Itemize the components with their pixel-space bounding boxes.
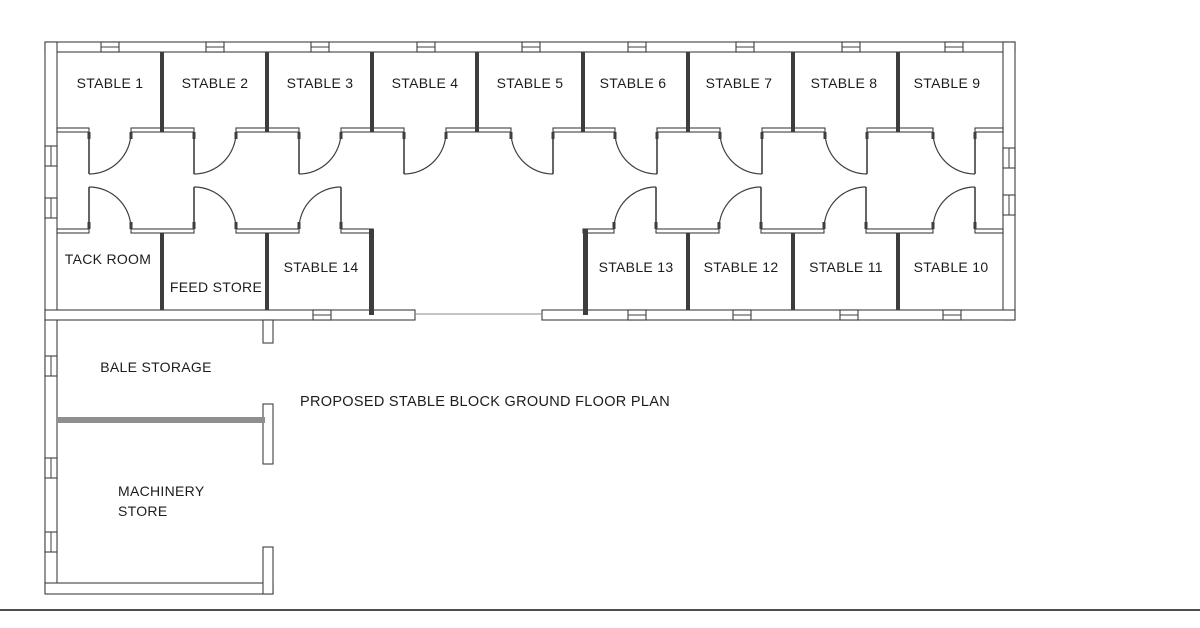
divider-stable-2-3	[265, 52, 269, 132]
door-swing-arc-stable-9	[933, 132, 975, 174]
door-swing-arc-stable-1	[89, 132, 131, 174]
room-label-stable-5: STABLE 5	[497, 75, 564, 91]
divider-stable-3-4	[370, 52, 374, 132]
door-swing-arc-stable-5	[511, 132, 553, 174]
door-swing-arc-stable-10	[933, 187, 975, 229]
bale-opening-jamb	[263, 320, 273, 343]
stable-13-end-wall	[583, 229, 588, 315]
right-exterior-wall	[1003, 42, 1015, 320]
machinery-opening-jamb	[263, 547, 273, 594]
door-swing-arc-stable-14	[299, 187, 341, 229]
divider-stable-12-11	[791, 233, 795, 310]
divider-stable-7-8	[791, 52, 795, 132]
corridor-south-wall-segment	[866, 229, 933, 233]
room-label-stable-4: STABLE 4	[392, 75, 459, 91]
room-label-bale-storage: BALE STORAGE	[100, 359, 212, 375]
room-label-stable-10: STABLE 10	[914, 259, 989, 275]
door-swing-arc-stable-12	[719, 187, 761, 229]
bale-machinery-partition-wall	[57, 417, 265, 423]
partition-end-pilaster	[263, 404, 273, 464]
divider-stable-13-12	[686, 233, 690, 310]
corridor-south-wall-segment	[656, 229, 719, 233]
room-label-stable-13: STABLE 13	[599, 259, 674, 275]
corridor-north-wall-segment	[57, 128, 89, 132]
room-label-stable-7: STABLE 7	[706, 75, 773, 91]
corridor-south-wall-segment	[236, 229, 299, 233]
corridor-north-wall-segment	[975, 128, 1003, 132]
room-label-machinery-store: MACHINERY STORE	[118, 481, 204, 521]
machinery-bottom-wall	[45, 583, 273, 594]
divider-stable-1-2	[160, 52, 164, 132]
door-swing-arc-stable-8	[825, 132, 867, 174]
room-label-stable-8: STABLE 8	[811, 75, 878, 91]
corridor-south-wall-segment	[341, 229, 373, 233]
door-swing-arc-stable-3	[299, 132, 341, 174]
floor-plan-drawing	[0, 0, 1200, 628]
room-label-stable-12: STABLE 12	[704, 259, 779, 275]
divider-feed-stable14	[265, 233, 269, 310]
room-label-stable-6: STABLE 6	[600, 75, 667, 91]
room-label-feed-store: FEED STORE	[170, 279, 262, 295]
corridor-south-wall-segment	[975, 229, 1003, 233]
corridor-south-wall-segment	[761, 229, 824, 233]
floor-plan-canvas: STABLE 1STABLE 2STABLE 3STABLE 4STABLE 5…	[0, 0, 1200, 628]
room-label-stable-3: STABLE 3	[287, 75, 354, 91]
door-swing-arc-stable-4	[404, 132, 446, 174]
room-label-stable-11: STABLE 11	[809, 259, 883, 275]
divider-stable-11-10	[896, 233, 900, 310]
corridor-south-wall-segment	[131, 229, 194, 233]
room-label-stable-9: STABLE 9	[914, 75, 981, 91]
door-swing-arc-tack-room	[89, 187, 131, 229]
south-wall-west	[45, 310, 415, 320]
door-swing-arc-feed-store	[194, 187, 236, 229]
divider-stable-8-9	[896, 52, 900, 132]
stable-14-end-wall	[369, 229, 374, 315]
door-swing-arc-stable-11	[824, 187, 866, 229]
divider-stable-6-7	[686, 52, 690, 132]
door-swing-arc-stable-6	[615, 132, 657, 174]
page-divider-line	[0, 609, 1200, 611]
room-label-stable-14: STABLE 14	[284, 259, 359, 275]
corridor-south-wall-segment	[57, 229, 89, 233]
plan-title: PROPOSED STABLE BLOCK GROUND FLOOR PLAN	[300, 394, 670, 410]
room-label-stable-2: STABLE 2	[182, 75, 249, 91]
divider-stable-4-5	[475, 52, 479, 132]
room-label-stable-1: STABLE 1	[77, 75, 144, 91]
door-swing-arc-stable-13	[614, 187, 656, 229]
divider-stable-5-6	[581, 52, 585, 132]
door-swing-arc-stable-7	[720, 132, 762, 174]
room-label-tack-room: TACK ROOM	[65, 251, 151, 267]
divider-tack-feed	[160, 233, 164, 310]
door-swing-arc-stable-2	[194, 132, 236, 174]
